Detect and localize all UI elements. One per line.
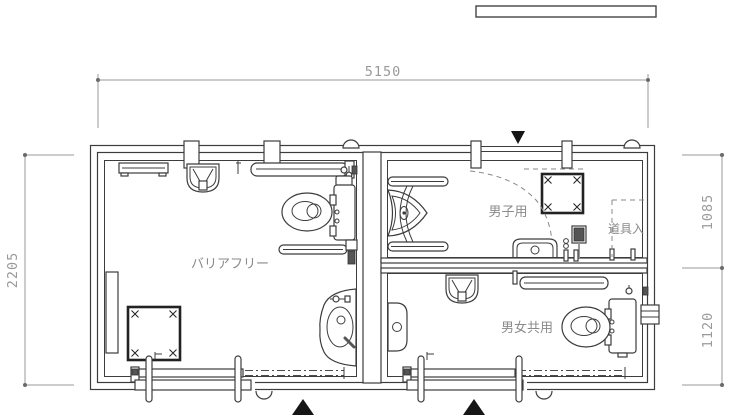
dimension-height-label: 2205	[5, 252, 21, 289]
dimension-right-heights: 1085 1120	[682, 153, 724, 387]
entrance-arrow-right	[463, 399, 485, 415]
entrance-arrow-top	[511, 131, 525, 144]
door-handle	[536, 391, 552, 399]
floor-plan-canvas: 5150 2205 1085 1120	[0, 0, 730, 417]
dimension-top-width: 5150	[96, 64, 650, 128]
pipe-shaft	[542, 174, 583, 213]
wall-panel	[106, 272, 118, 353]
entrance-arrow-left	[292, 399, 314, 415]
wall-sink	[388, 303, 407, 351]
room-label-barrier-free: バリアフリー	[191, 257, 269, 272]
corner-basin	[446, 275, 478, 303]
divider-wall-vertical	[363, 152, 381, 383]
vent-dome	[624, 140, 640, 148]
dimension-left-height: 2205	[5, 153, 74, 387]
room-label-mens: 男子用	[488, 205, 527, 220]
room-label-tool-storage: 道具入	[608, 222, 644, 236]
door-handle	[256, 391, 272, 399]
divider-wall-horizontal	[381, 258, 647, 263]
shower-pan	[128, 307, 180, 360]
dimension-width-label: 5150	[365, 64, 402, 80]
title-strip	[476, 6, 656, 17]
dimension-mens-height-label: 1085	[700, 194, 716, 231]
room-label-unisex: 男女共用	[501, 320, 553, 336]
vent-dome	[343, 140, 359, 148]
corner-basin	[187, 164, 219, 192]
floor-plan-drawing: 5150 2205 1085 1120	[0, 0, 730, 417]
dimension-unisex-height-label: 1120	[700, 312, 716, 349]
